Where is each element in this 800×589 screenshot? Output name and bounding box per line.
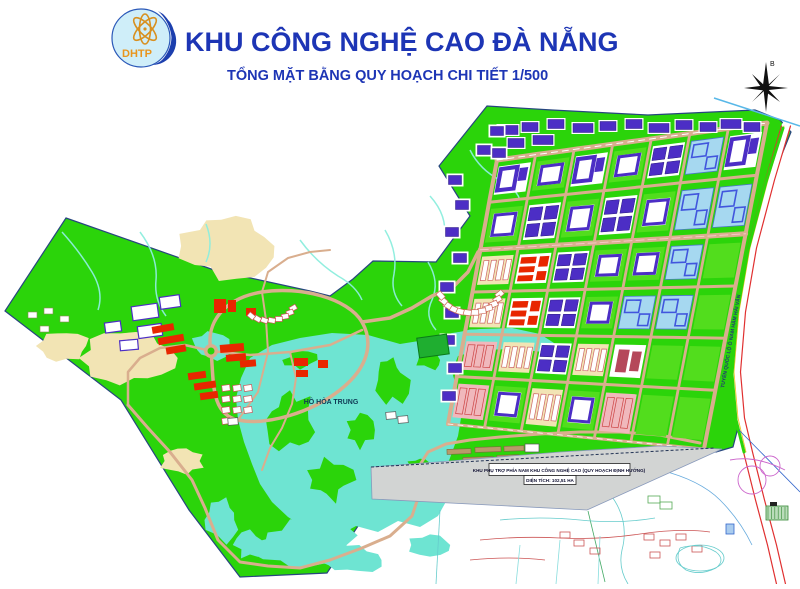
svg-text:DIỆN TÍCH: 102,51 HA: DIỆN TÍCH: 102,51 HA [526,476,574,483]
svg-text:DHTP: DHTP [122,48,152,60]
svg-text:KHU CÔNG NGHỆ CAO ĐÀ NẴNG: KHU CÔNG NGHỆ CAO ĐÀ NẴNG [185,25,619,57]
svg-text:B: B [770,61,775,68]
svg-text:KHU PHỤ TRỢ PHÍA NAM KHU CÔNG: KHU PHỤ TRỢ PHÍA NAM KHU CÔNG NGHỆ CAO (… [473,466,646,473]
svg-text:TỔNG MẶT BẰNG QUY HOẠCH CHI TI: TỔNG MẶT BẰNG QUY HOẠCH CHI TIẾT 1/500 [227,66,548,84]
